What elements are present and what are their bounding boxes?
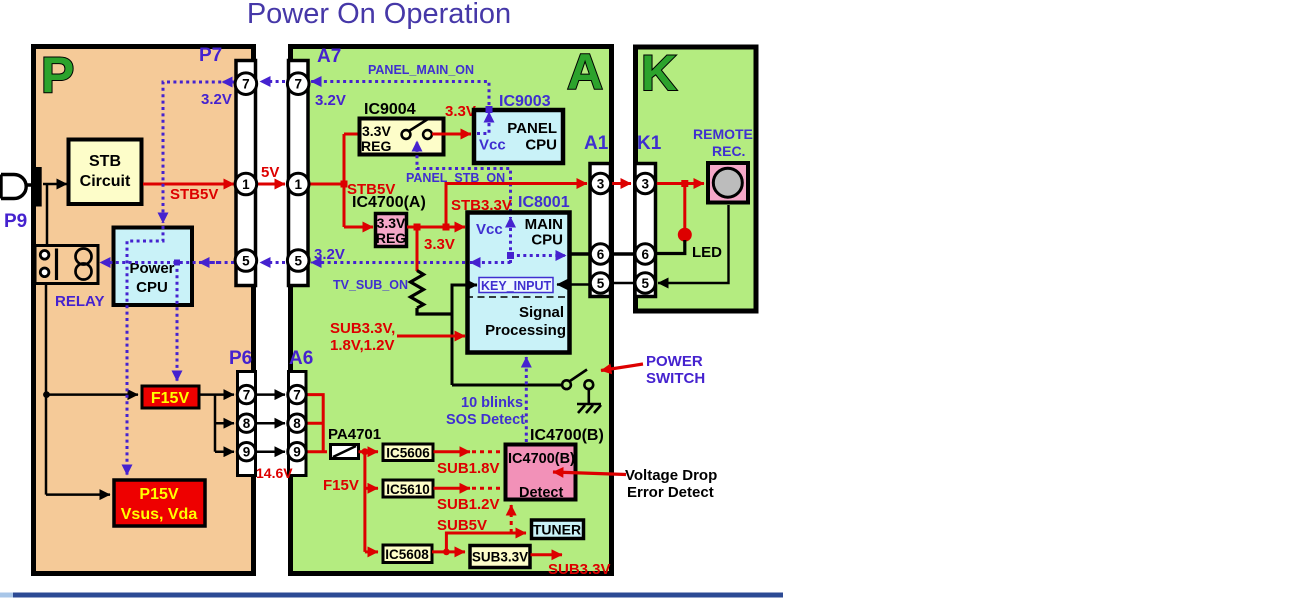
svg-text:P: P xyxy=(41,47,74,103)
svg-text:5: 5 xyxy=(597,276,605,291)
svg-text:Detect: Detect xyxy=(519,485,563,501)
svg-text:3.3V: 3.3V xyxy=(362,123,391,139)
svg-text:CPU: CPU xyxy=(531,232,563,249)
svg-text:SUB3.3V,: SUB3.3V, xyxy=(330,320,395,337)
svg-text:3.3V: 3.3V xyxy=(377,215,406,231)
svg-text:REG: REG xyxy=(361,138,391,154)
svg-text:SUB5V: SUB5V xyxy=(437,517,487,534)
svg-text:IC4700(A): IC4700(A) xyxy=(352,194,426,211)
svg-text:10 blinks: 10 blinks xyxy=(461,395,523,411)
svg-text:IC5606: IC5606 xyxy=(386,446,430,461)
svg-text:P15V: P15V xyxy=(139,486,178,503)
svg-text:LED: LED xyxy=(692,244,722,261)
svg-text:3: 3 xyxy=(597,176,605,191)
svg-text:Voltage Drop: Voltage Drop xyxy=(625,467,717,484)
svg-text:5: 5 xyxy=(641,276,649,291)
svg-text:CPU: CPU xyxy=(136,279,168,296)
svg-text:3.2V: 3.2V xyxy=(314,246,345,263)
svg-text:POWER: POWER xyxy=(646,353,703,370)
svg-text:PANEL_MAIN_ON: PANEL_MAIN_ON xyxy=(368,63,474,77)
svg-text:1.8V,1.2V: 1.8V,1.2V xyxy=(330,337,395,354)
svg-text:Processing: Processing xyxy=(485,322,566,339)
svg-text:1: 1 xyxy=(242,177,250,192)
svg-text:7: 7 xyxy=(242,77,250,92)
svg-text:SUB1.8V: SUB1.8V xyxy=(437,460,500,477)
svg-text:TV_SUB_ON: TV_SUB_ON xyxy=(333,278,408,292)
svg-text:F15V: F15V xyxy=(323,477,359,494)
svg-text:REMOTE: REMOTE xyxy=(693,126,753,142)
svg-text:A: A xyxy=(567,44,603,100)
svg-text:5: 5 xyxy=(242,253,250,268)
svg-text:SUB1.2V: SUB1.2V xyxy=(437,496,500,513)
svg-text:Error Detect: Error Detect xyxy=(627,484,714,501)
svg-text:CPU: CPU xyxy=(525,137,557,154)
svg-text:IC4700(B): IC4700(B) xyxy=(530,427,604,444)
svg-text:3: 3 xyxy=(641,176,649,191)
svg-text:IC4700(B): IC4700(B) xyxy=(508,451,575,467)
svg-text:IC9004: IC9004 xyxy=(364,101,416,118)
svg-text:K1: K1 xyxy=(637,133,662,154)
svg-text:F15V: F15V xyxy=(151,390,190,407)
svg-text:7: 7 xyxy=(243,387,251,402)
svg-text:8: 8 xyxy=(243,416,251,431)
svg-text:1: 1 xyxy=(294,177,302,192)
svg-text:SUB3.3V: SUB3.3V xyxy=(472,550,528,565)
svg-text:6: 6 xyxy=(597,247,605,262)
svg-text:K: K xyxy=(641,45,677,101)
svg-text:3.2V: 3.2V xyxy=(201,91,232,108)
svg-text:Signal: Signal xyxy=(519,304,564,321)
svg-text:5V: 5V xyxy=(261,164,279,181)
svg-text:SUB3.3V: SUB3.3V xyxy=(548,561,611,578)
svg-text:3.2V: 3.2V xyxy=(315,92,346,109)
svg-text:KEY_INPUT: KEY_INPUT xyxy=(481,279,552,293)
svg-text:RELAY: RELAY xyxy=(55,293,104,310)
svg-text:STB: STB xyxy=(89,153,121,170)
svg-text:7: 7 xyxy=(294,77,302,92)
svg-text:IC9003: IC9003 xyxy=(499,93,551,110)
svg-text:Vcc: Vcc xyxy=(479,137,506,154)
svg-text:Circuit: Circuit xyxy=(80,173,131,190)
svg-text:7: 7 xyxy=(293,387,301,402)
svg-text:9: 9 xyxy=(243,445,251,460)
svg-text:SOS Detect: SOS Detect xyxy=(446,412,525,428)
svg-text:TUNER: TUNER xyxy=(533,522,581,538)
svg-text:A7: A7 xyxy=(317,46,341,67)
svg-text:Vsus, Vda: Vsus, Vda xyxy=(121,506,198,523)
svg-text:5: 5 xyxy=(294,253,302,268)
svg-text:A1: A1 xyxy=(584,133,609,154)
svg-text:MAIN: MAIN xyxy=(525,216,563,233)
svg-text:Power On Operation: Power On Operation xyxy=(247,0,511,30)
svg-text:PANEL: PANEL xyxy=(507,120,557,137)
svg-text:14.6V: 14.6V xyxy=(256,465,293,481)
svg-text:PA4701: PA4701 xyxy=(328,426,381,443)
svg-text:STB5V: STB5V xyxy=(170,186,218,203)
svg-text:A6: A6 xyxy=(289,348,313,369)
svg-text:REC.: REC. xyxy=(712,143,745,159)
svg-text:REG: REG xyxy=(376,230,406,246)
svg-text:P9: P9 xyxy=(4,211,27,232)
svg-text:P7: P7 xyxy=(199,45,222,66)
svg-text:IC8001: IC8001 xyxy=(518,194,570,211)
svg-text:3.3V: 3.3V xyxy=(445,103,476,120)
svg-text:3.3V: 3.3V xyxy=(424,236,455,253)
svg-text:9: 9 xyxy=(293,445,301,460)
svg-text:P6: P6 xyxy=(229,348,252,369)
svg-text:IC5608: IC5608 xyxy=(385,547,429,562)
svg-text:Vcc: Vcc xyxy=(476,221,503,238)
svg-text:6: 6 xyxy=(641,247,649,262)
svg-text:IC5610: IC5610 xyxy=(386,482,430,497)
svg-text:8: 8 xyxy=(293,416,301,431)
svg-text:SWITCH: SWITCH xyxy=(646,370,705,387)
